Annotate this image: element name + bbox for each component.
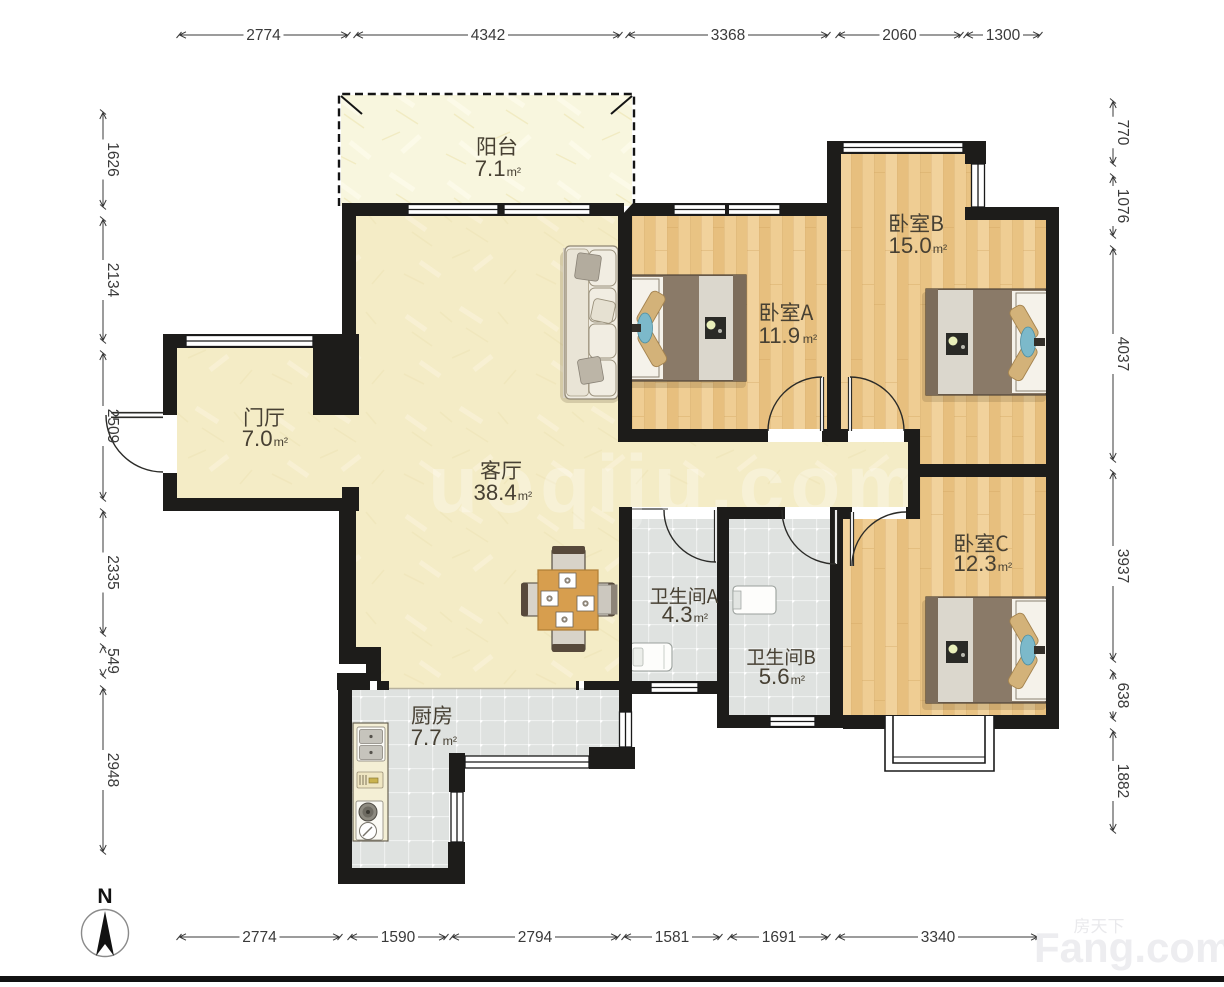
svg-text:m²: m² [274,435,288,449]
svg-text:1076: 1076 [1114,189,1131,223]
svg-text:12.3: 12.3 [954,551,997,576]
svg-text:1590: 1590 [381,929,416,946]
svg-text:m²: m² [507,165,521,179]
svg-text:11.9: 11.9 [759,323,801,348]
svg-text:5.6: 5.6 [759,664,790,689]
svg-text:1882: 1882 [1114,764,1131,798]
svg-text:4037: 4037 [1114,337,1131,371]
svg-text:2948: 2948 [104,753,121,787]
svg-text:1691: 1691 [762,929,796,946]
svg-text:m²: m² [791,673,805,687]
svg-text:2134: 2134 [104,263,121,298]
svg-text:7.1: 7.1 [475,156,506,181]
svg-text:N: N [97,885,112,908]
svg-text:2774: 2774 [246,27,281,44]
svg-text:1626: 1626 [104,142,121,176]
svg-text:4342: 4342 [471,27,505,44]
svg-text:2509: 2509 [104,409,121,443]
svg-text:38.4: 38.4 [474,480,517,505]
svg-text:Fang.com: Fang.com [1034,924,1224,971]
svg-text:m²: m² [694,611,708,625]
svg-text:2060: 2060 [882,27,917,44]
svg-text:3368: 3368 [711,27,745,44]
svg-text:m²: m² [933,242,947,256]
svg-text:2774: 2774 [242,929,277,946]
svg-text:7.7: 7.7 [411,725,442,750]
svg-text:1581: 1581 [655,929,689,946]
svg-text:m²: m² [518,489,532,503]
svg-text:4.3: 4.3 [662,602,693,627]
svg-text:549: 549 [104,648,121,674]
svg-text:3937: 3937 [1114,549,1131,583]
svg-text:2794: 2794 [518,929,553,946]
svg-text:3340: 3340 [921,929,956,946]
svg-text:2335: 2335 [104,555,121,589]
svg-text:770: 770 [1114,120,1131,146]
svg-text:7.0: 7.0 [242,426,273,451]
svg-text:1300: 1300 [986,27,1021,44]
svg-text:m²: m² [443,734,457,748]
svg-text:m²: m² [998,560,1012,574]
svg-text:m²: m² [803,332,817,346]
svg-text:15.0: 15.0 [889,233,932,258]
svg-text:638: 638 [1114,683,1131,709]
